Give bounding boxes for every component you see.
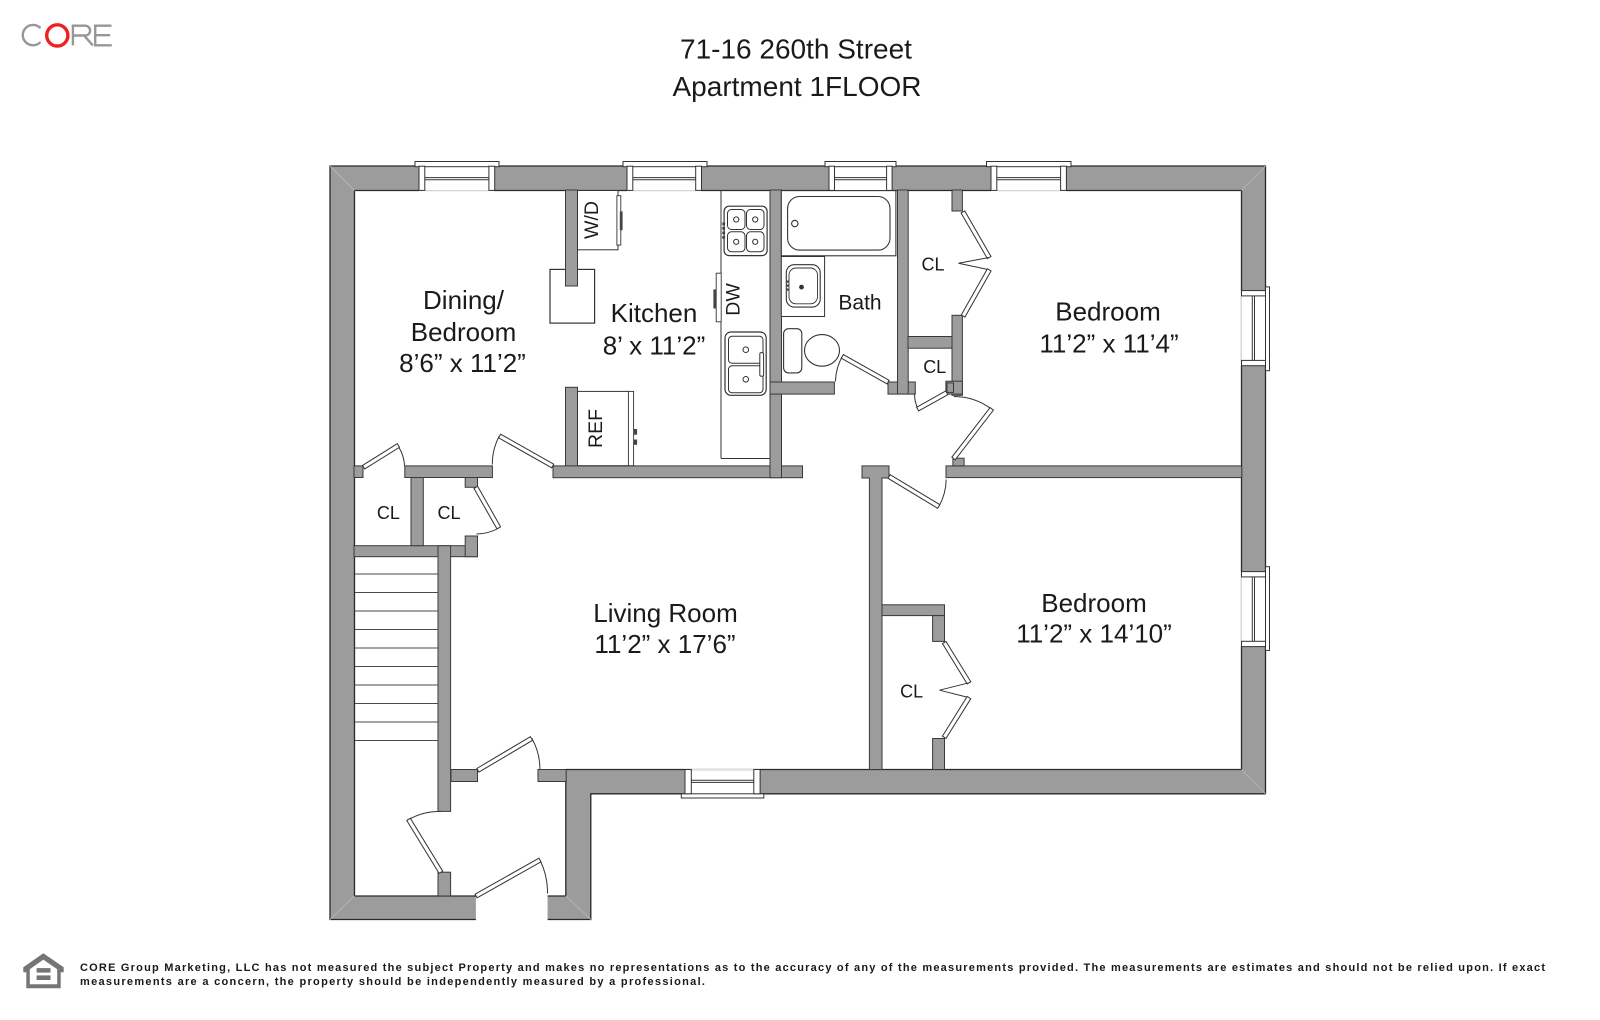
svg-text:DW: DW xyxy=(723,283,745,316)
svg-text:Apartment 1FLOOR: Apartment 1FLOOR xyxy=(673,71,922,102)
svg-text:11’2” x 17’6”: 11’2” x 17’6” xyxy=(594,629,735,659)
svg-text:Bedroom: Bedroom xyxy=(411,317,517,347)
svg-text:CL: CL xyxy=(921,255,944,275)
svg-text:Dining/: Dining/ xyxy=(423,285,505,315)
svg-text:CL: CL xyxy=(923,357,946,377)
svg-text:Bedroom: Bedroom xyxy=(1055,296,1161,326)
svg-text:11’2” x 11’4”: 11’2” x 11’4” xyxy=(1039,328,1178,358)
svg-text:REF: REF xyxy=(585,409,607,448)
svg-text:Bedroom: Bedroom xyxy=(1041,588,1147,618)
svg-text:CORE Group Marketing, LLC has: CORE Group Marketing, LLC has not measur… xyxy=(80,962,1545,974)
svg-text:CL: CL xyxy=(437,503,460,523)
svg-text:71-16 260th Street: 71-16 260th Street xyxy=(680,34,912,65)
svg-text:8’ x 11’2”: 8’ x 11’2” xyxy=(603,331,706,361)
svg-text:Living Room: Living Room xyxy=(593,598,738,628)
svg-text:measurements are a concern, th: measurements are a concern, the property… xyxy=(80,976,705,988)
svg-text:8’6” x 11’2”: 8’6” x 11’2” xyxy=(399,348,526,378)
svg-text:CL: CL xyxy=(377,503,400,523)
svg-text:CL: CL xyxy=(900,682,923,702)
svg-text:Bath: Bath xyxy=(838,291,881,314)
svg-text:11’2” x 14’10”: 11’2” x 14’10” xyxy=(1016,619,1172,649)
svg-text:W/D: W/D xyxy=(581,201,603,239)
svg-text:Kitchen: Kitchen xyxy=(611,298,698,328)
